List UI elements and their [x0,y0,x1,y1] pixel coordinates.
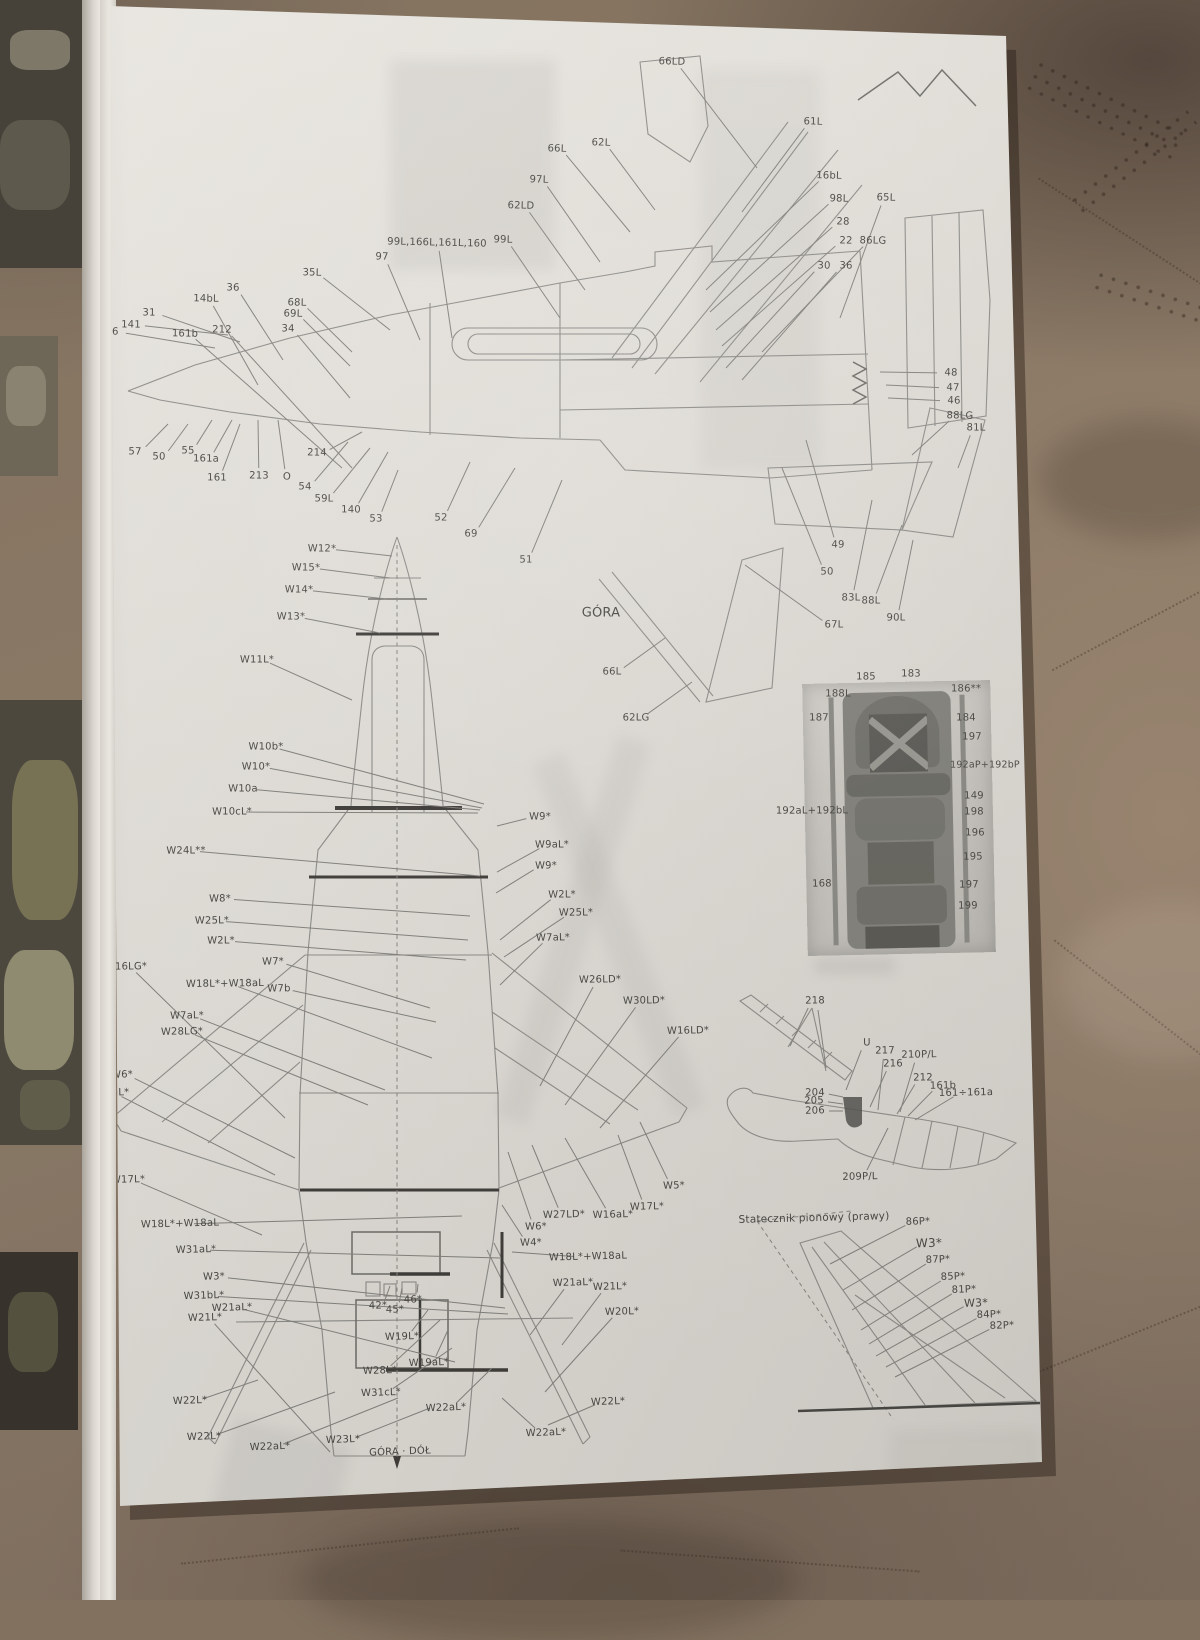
stitch-line [1052,571,1200,671]
left-page-photo [0,1252,78,1430]
stitch-line [1028,1285,1200,1377]
photo-highlight [0,120,70,210]
photo-highlight [6,366,46,426]
photo-highlight [12,760,78,920]
photo-highlight [10,30,70,70]
photo-highlight [20,1080,70,1130]
photo-scene: 66LD66L62L97L62LD99L9799L,166L,161L,1603… [0,0,1200,1600]
left-page-photo [0,700,92,1145]
perforation-dots [1089,267,1200,329]
fabric-fold [1040,420,1200,540]
fabric-fold [1060,900,1200,1060]
photo-highlight [8,1292,58,1372]
left-page-photo [0,0,86,268]
photo-highlight [4,950,74,1070]
left-page-photo [0,336,58,476]
fabric-fold [300,1520,800,1640]
